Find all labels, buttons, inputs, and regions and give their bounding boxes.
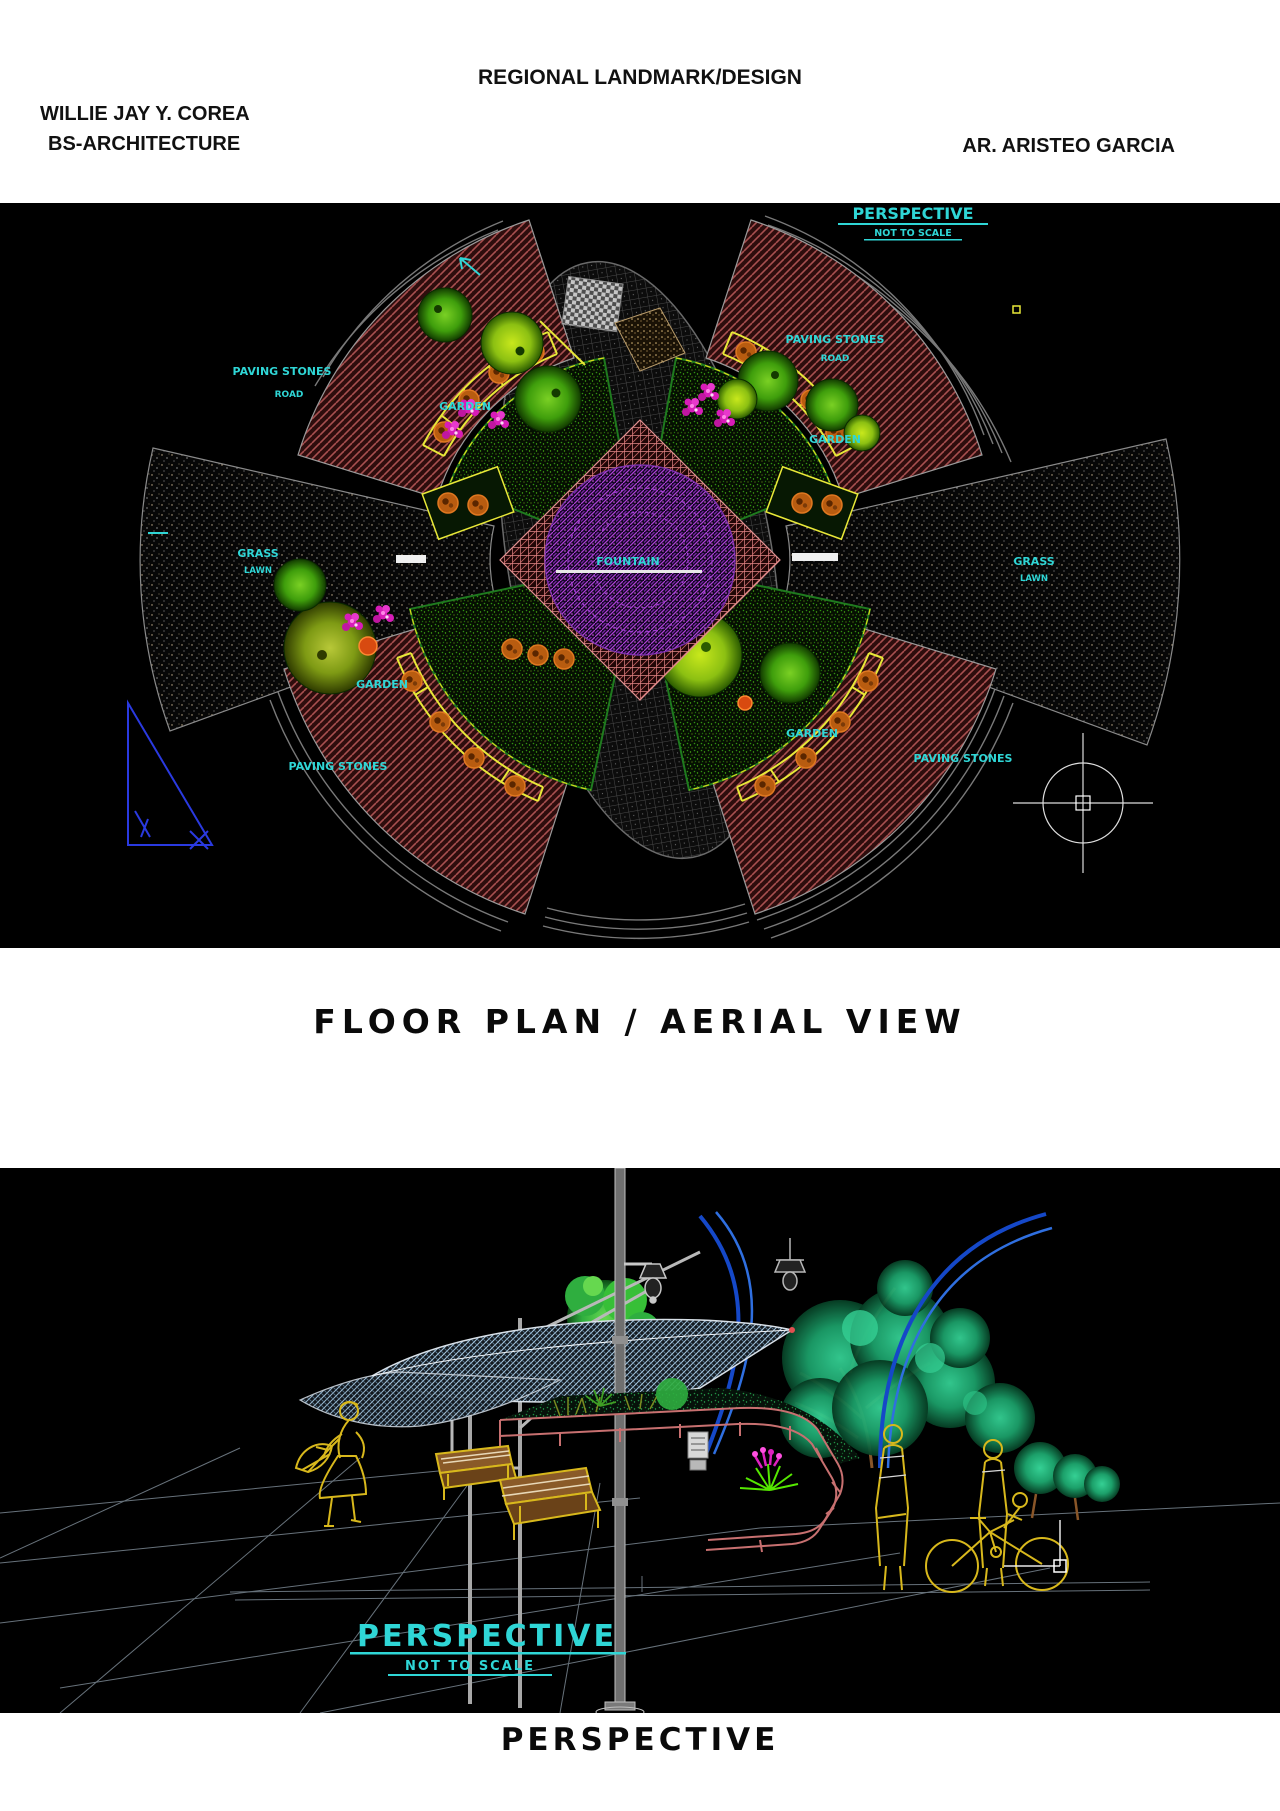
label-garden-nw: GARDEN	[439, 400, 491, 413]
floor-plan-caption: FLOOR PLAN / AERIAL VIEW	[0, 1002, 1280, 1041]
label-garden-ne: GARDEN	[809, 433, 861, 446]
label-grass-e: GRASS	[1013, 555, 1054, 568]
label-grass-w-sub: LAWN	[244, 566, 272, 576]
perspective-subtitle: NOT TO SCALE	[405, 1659, 535, 1674]
floor-plan-svg: PERSPECTIVE NOT TO SCALE PAVING STONES R…	[0, 203, 1280, 948]
floor-plan-drawing: PERSPECTIVE NOT TO SCALE PAVING STONES R…	[0, 203, 1280, 948]
page-title: REGIONAL LANDMARK/DESIGN	[0, 66, 1280, 90]
label-paving-ne: PAVING STONES	[786, 333, 885, 346]
label-center-fountain: FOUNTAIN	[596, 555, 659, 568]
perspective-title: PERSPECTIVE	[357, 1619, 617, 1654]
label-grass-e-sub: LAWN	[1020, 574, 1048, 584]
label-paving-sw: PAVING STONES	[289, 760, 388, 773]
student-name: WILLIE JAY Y. COREA	[40, 103, 250, 126]
instructor-name: AR. ARISTEO GARCIA	[962, 135, 1175, 158]
perspective-drawing: PERSPECTIVE NOT TO SCALE	[0, 1168, 1280, 1713]
perspective-caption: PERSPECTIVE	[0, 1722, 1280, 1758]
label-paving-nw: PAVING STONES	[233, 365, 332, 378]
perspective-svg: PERSPECTIVE NOT TO SCALE	[0, 1168, 1280, 1713]
label-paving-se: PAVING STONES	[914, 752, 1013, 765]
label-garden-se: GARDEN	[786, 727, 838, 740]
presentation-board: REGIONAL LANDMARK/DESIGN WILLIE JAY Y. C…	[0, 0, 1280, 1811]
label-grass-w: GRASS	[237, 547, 278, 560]
label-garden-sw: GARDEN	[356, 678, 408, 691]
label-paving-nw-sub: ROAD	[275, 390, 304, 400]
plan-corner-sublabel: NOT TO SCALE	[874, 228, 951, 239]
label-paving-ne-sub: ROAD	[821, 354, 850, 364]
course-name: BS-ARCHITECTURE	[48, 133, 240, 156]
plan-corner-label: PERSPECTIVE	[852, 204, 973, 223]
perspective-background	[0, 1168, 1280, 1713]
